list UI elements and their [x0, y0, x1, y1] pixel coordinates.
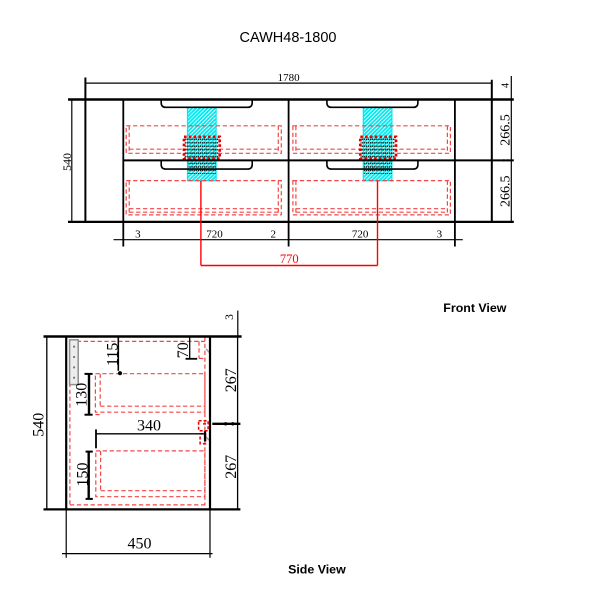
svg-text:540: 540 [30, 413, 47, 437]
svg-text:720: 720 [206, 228, 223, 240]
svg-text:Side View: Side View [288, 562, 346, 576]
svg-text:3: 3 [224, 314, 236, 320]
svg-text:770: 770 [280, 252, 299, 266]
svg-text:3: 3 [135, 228, 141, 240]
svg-text:266.5: 266.5 [499, 114, 514, 146]
svg-text:340: 340 [137, 417, 161, 434]
svg-text:267: 267 [223, 368, 240, 392]
svg-text:720: 720 [352, 228, 369, 240]
svg-text:4: 4 [501, 83, 512, 88]
svg-text:540: 540 [60, 153, 74, 171]
svg-text:Front View: Front View [443, 301, 506, 315]
svg-text:70: 70 [175, 342, 192, 358]
svg-text:115: 115 [104, 343, 121, 366]
svg-text:266.5: 266.5 [499, 176, 514, 208]
svg-text:130: 130 [73, 383, 90, 407]
svg-text:2: 2 [270, 228, 276, 240]
svg-text:3: 3 [437, 228, 443, 240]
svg-text:450: 450 [128, 536, 152, 553]
svg-text:150: 150 [75, 463, 92, 487]
svg-text:1780: 1780 [278, 72, 301, 84]
svg-text:267: 267 [223, 455, 240, 479]
svg-text:CAWH48-1800: CAWH48-1800 [240, 30, 337, 46]
